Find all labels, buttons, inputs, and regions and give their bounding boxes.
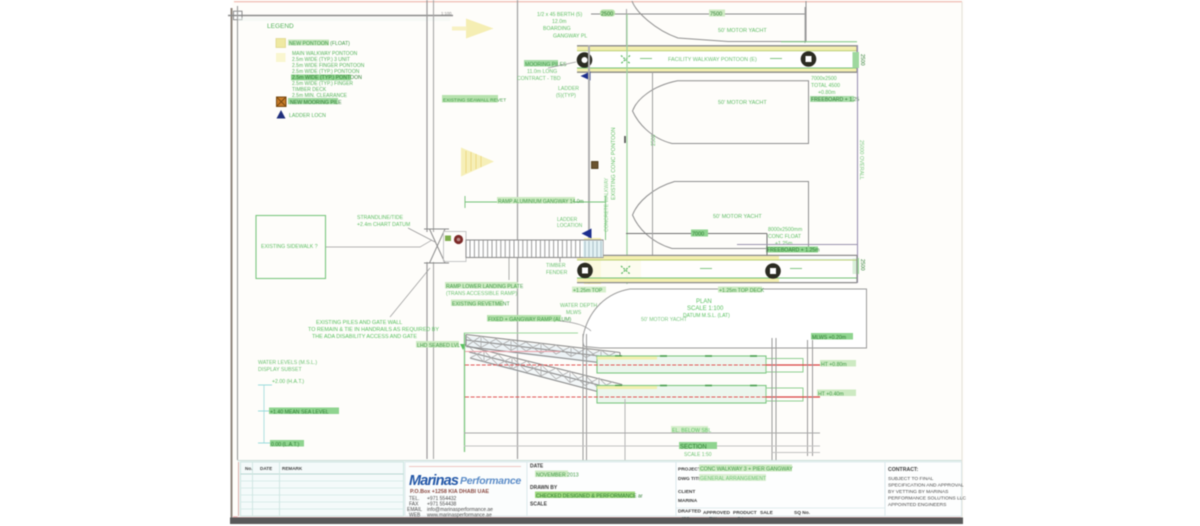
svg-text:1/2 x 45 BERTH (5): 1/2 x 45 BERTH (5) [537, 12, 582, 18]
svg-text:7000x2500: 7000x2500 [811, 76, 837, 82]
svg-text:50' MOTOR YACHT: 50' MOTOR YACHT [713, 214, 762, 220]
svg-text:7500: 7500 [710, 12, 722, 18]
svg-text:(TRANS ACCESSIBLE RAMP): (TRANS ACCESSIBLE RAMP) [446, 291, 517, 297]
svg-text:+1.40 MEAN SEA LEVEL: +1.40 MEAN SEA LEVEL [270, 410, 329, 416]
svg-text:GANGWAY PL: GANGWAY PL [553, 34, 587, 40]
svg-text:MLWS +0.20m: MLWS +0.20m [812, 335, 846, 341]
svg-text:EXISTING CONC PONTOON: EXISTING CONC PONTOON [611, 127, 617, 200]
svg-text:+2.00 (H.A.T.): +2.00 (H.A.T.) [272, 379, 304, 385]
svg-text:SECTION: SECTION [680, 445, 707, 451]
svg-text:EXISTING SIDEWALK ?: EXISTING SIDEWALK ? [261, 244, 318, 250]
svg-text:TW: TW [709, 516, 717, 522]
svg-text:CLIENT: CLIENT [678, 489, 695, 495]
svg-text:2500: 2500 [601, 12, 613, 18]
svg-text:LADDER: LADDER [558, 86, 579, 92]
svg-text:MLWS: MLWS [566, 310, 582, 316]
svg-text:2500: 2500 [859, 259, 865, 271]
svg-text:NEW PONTOON (FLOAT): NEW PONTOON (FLOAT) [289, 41, 350, 47]
svg-text:SQ No.: SQ No. [794, 510, 810, 516]
svg-text:www.marinasperformance.ae: www.marinasperformance.ae [427, 513, 492, 519]
svg-text:CONTRACT - TBD: CONTRACT - TBD [517, 76, 561, 82]
svg-text:2.5m WIDE (TYP.) PONTOON: 2.5m WIDE (TYP.) PONTOON [292, 75, 362, 81]
svg-text:RAMP LOWER LANDING PLATE: RAMP LOWER LANDING PLATE [446, 284, 524, 290]
svg-text:CHECKED DESIGNED & PERFORMANCE: CHECKED DESIGNED & PERFORMANCE ar [536, 494, 643, 500]
svg-text:LEGEND: LEGEND [267, 23, 294, 30]
svg-text:MARINA: MARINA [678, 498, 698, 504]
svg-text:REMARK: REMARK [282, 466, 303, 471]
svg-text:LADDER LOCN: LADDER LOCN [289, 113, 326, 119]
svg-text:THE ADA DISABILITY ACCESS AND: THE ADA DISABILITY ACCESS AND GATE [312, 334, 417, 340]
svg-text:DATUM M.S.L. (LAT): DATUM M.S.L. (LAT) [683, 313, 730, 319]
svg-text:P.O.Box +1258 KIA DHABI UAE: P.O.Box +1258 KIA DHABI UAE [410, 489, 489, 495]
svg-text:PERFORMANCE SOLUTIONS LLC: PERFORMANCE SOLUTIONS LLC [888, 496, 966, 502]
svg-text:11.0m LONG: 11.0m LONG [527, 69, 557, 75]
svg-text:+0.80m: +0.80m [818, 90, 835, 96]
svg-text:DISPLAY SUBSET: DISPLAY SUBSET [258, 367, 302, 373]
svg-text:8000x2500mm: 8000x2500mm [768, 227, 802, 233]
svg-text:Marinas: Marinas [409, 473, 459, 489]
svg-text:PRODUCT: PRODUCT [733, 510, 757, 516]
svg-text:7000: 7000 [692, 232, 704, 238]
svg-text:TO REMAIN & TIE IN HANDRAILS A: TO REMAIN & TIE IN HANDRAILS AS REQUIRED… [308, 327, 439, 333]
svg-text:50' MOTOR YACHT: 50' MOTOR YACHT [641, 317, 688, 323]
svg-text:EXISTING REVETMENT: EXISTING REVETMENT [452, 302, 510, 308]
svg-text:FACILITY WALKWAY PONTOON (E): FACILITY WALKWAY PONTOON (E) [668, 57, 757, 63]
svg-text:CONC FLOAT: CONC FLOAT [768, 234, 802, 240]
svg-text:No.: No. [245, 466, 252, 471]
svg-text:GENERAL ARRANGEMENT: GENERAL ARRANGEMENT [700, 476, 767, 482]
svg-text:PLAN: PLAN [696, 299, 712, 305]
svg-text:SALE: SALE [760, 510, 774, 516]
svg-text:(5)(TYP): (5)(TYP) [556, 93, 576, 99]
svg-text:DRAFTED: DRAFTED [678, 509, 701, 515]
svg-text:SUBJECT TO FINAL: SUBJECT TO FINAL [888, 476, 934, 482]
svg-text:CONTRACT:: CONTRACT: [888, 467, 919, 473]
svg-text:25000 OVERALL: 25000 OVERALL [858, 140, 864, 180]
svg-text:STRANDLINE/TIDE: STRANDLINE/TIDE [357, 215, 404, 221]
svg-text:LOCATION: LOCATION [557, 223, 583, 229]
svg-text:CONC WALKWAY 3 + PIER GANGWAY: CONC WALKWAY 3 + PIER GANGWAY [700, 467, 793, 473]
svg-text:CONCRETE WALKWAY: CONCRETE WALKWAY [604, 177, 610, 232]
svg-text:NEW MOORING PILE: NEW MOORING PILE [290, 100, 342, 106]
svg-text:+1.25m TOP: +1.25m TOP [573, 288, 603, 294]
svg-text:12.0m: 12.0m [552, 19, 566, 25]
svg-text:0.00 (L.A.T.): 0.00 (L.A.T.) [271, 442, 300, 448]
svg-text:DRAWN BY: DRAWN BY [530, 485, 558, 491]
svg-text:GA: GA [737, 516, 745, 522]
svg-text:50' MOTOR YACHT: 50' MOTOR YACHT [718, 28, 767, 34]
svg-text:DATE: DATE [530, 464, 544, 470]
svg-text:EXISTING SEAWALL REVET: EXISTING SEAWALL REVET [443, 98, 506, 104]
svg-text:SPECIFICATION AND APPROVAL: SPECIFICATION AND APPROVAL [888, 483, 964, 489]
svg-text:HT +0.40m: HT +0.40m [818, 392, 844, 398]
svg-text:NOVEMBER 2013: NOVEMBER 2013 [536, 473, 579, 479]
svg-text:2500: 2500 [859, 54, 865, 66]
svg-text:WEB: WEB [409, 513, 421, 519]
svg-text:SCALE 1:50: SCALE 1:50 [684, 452, 712, 458]
svg-text:FREEBOARD + 1.25: FREEBOARD + 1.25 [811, 97, 859, 103]
svg-text:SCALE: SCALE [530, 502, 548, 508]
svg-text:Performance: Performance [460, 475, 521, 487]
svg-text:BOARDING: BOARDING [543, 26, 571, 32]
svg-text:APPROVED: APPROVED [703, 510, 730, 516]
svg-text:50' MOTOR YACHT: 50' MOTOR YACHT [718, 100, 767, 106]
svg-text:RAMP ALUMINIUM GANGWAY 14.0m: RAMP ALUMINIUM GANGWAY 14.0m [498, 199, 584, 205]
svg-text:EXISTING PILES AND GATE WALL: EXISTING PILES AND GATE WALL [316, 320, 402, 326]
svg-text:EL. BELOW SBL: EL. BELOW SBL [672, 428, 711, 434]
svg-text:FIXED + GANGWAY RAMP (ALUM): FIXED + GANGWAY RAMP (ALUM) [488, 317, 572, 323]
svg-text:APPOINTED ENGINEERS: APPOINTED ENGINEERS [888, 502, 947, 508]
svg-text:JPB: JPB [681, 516, 690, 522]
svg-text:DATE: DATE [260, 466, 272, 471]
svg-text:LHD SEABED LVL: LHD SEABED LVL [417, 343, 460, 349]
svg-text:FREEBOARD + 1.25m: FREEBOARD + 1.25m [767, 248, 820, 254]
svg-text:HT +0.80m: HT +0.80m [821, 362, 847, 368]
svg-text:WATER LEVELS (M.S.L.): WATER LEVELS (M.S.L.) [258, 360, 317, 366]
svg-text:TOTAL 4500: TOTAL 4500 [811, 83, 840, 89]
svg-text:+1.25m TOP DECK: +1.25m TOP DECK [719, 288, 765, 294]
svg-text:PROJECT: PROJECT [678, 467, 701, 473]
svg-text:+2.4m CHART DATUM: +2.4m CHART DATUM [357, 222, 410, 228]
svg-text:BY VETTING BY MARINAS: BY VETTING BY MARINAS [888, 489, 949, 495]
svg-text:2500: 2500 [651, 134, 657, 146]
svg-text:FENDER: FENDER [546, 270, 568, 276]
svg-text:TIMBER: TIMBER [546, 263, 566, 269]
svg-text:SCALE 1:100: SCALE 1:100 [687, 306, 724, 312]
